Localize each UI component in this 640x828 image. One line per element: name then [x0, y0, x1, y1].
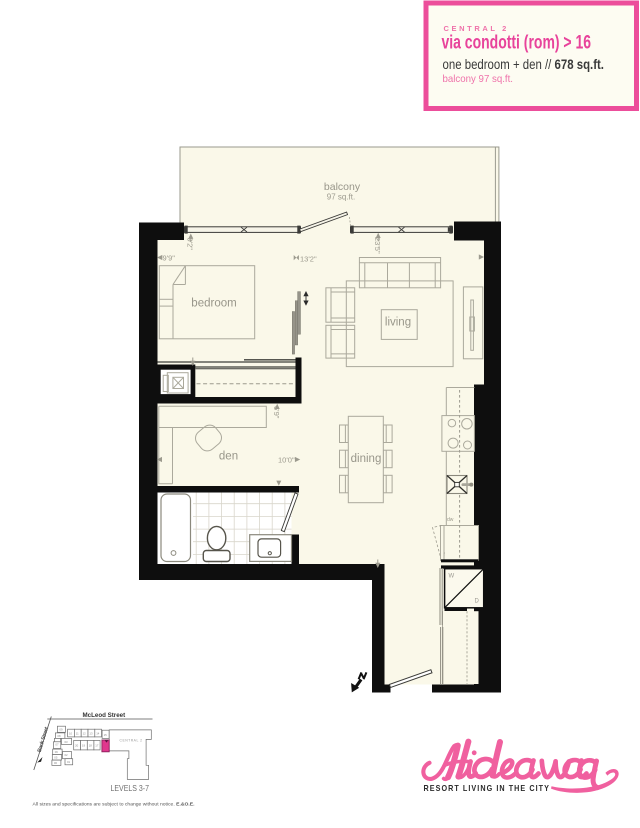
svg-text:W: W: [449, 574, 455, 580]
svg-text:97 sq.ft.: 97 sq.ft.: [327, 193, 355, 202]
svg-text:00: 00: [54, 761, 58, 765]
svg-text:23'5": 23'5": [373, 237, 382, 254]
svg-text:balcony: balcony: [324, 181, 361, 193]
svg-text:9'9": 9'9": [163, 254, 176, 263]
svg-text:McLeod Street: McLeod Street: [83, 712, 126, 719]
svg-text:08: 08: [57, 734, 61, 738]
svg-text:CENTRAL 2: CENTRAL 2: [120, 738, 143, 742]
svg-text:All sizes and specifications a: All sizes and specifications are subject…: [33, 801, 195, 806]
svg-text:dining: dining: [351, 453, 382, 465]
svg-text:06: 06: [55, 750, 59, 754]
svg-text:10: 10: [69, 732, 73, 736]
svg-text:19: 19: [82, 744, 86, 748]
svg-text:RESORT LIVING IN THE CITY: RESORT LIVING IN THE CITY: [424, 784, 551, 793]
svg-text:02: 02: [65, 753, 69, 757]
svg-text:13'2": 13'2": [300, 255, 317, 264]
svg-text:18: 18: [89, 744, 93, 748]
svg-text:13: 13: [89, 732, 93, 736]
svg-text:balcony 97 sq.ft.: balcony 97 sq.ft.: [443, 73, 514, 85]
svg-text:LEVELS 3-7: LEVELS 3-7: [111, 784, 150, 793]
svg-text:via condotti (rom) > 16: via condotti (rom) > 16: [442, 33, 592, 54]
svg-text:D: D: [475, 599, 480, 605]
svg-text:17: 17: [95, 744, 99, 748]
svg-text:10'0": 10'0": [278, 456, 295, 465]
svg-text:01: 01: [67, 760, 71, 764]
svg-text:15: 15: [104, 733, 108, 737]
svg-text:12: 12: [83, 732, 87, 736]
svg-text:living: living: [385, 317, 411, 329]
svg-text:09: 09: [59, 728, 63, 732]
svg-text:14: 14: [96, 732, 100, 736]
svg-text:bedroom: bedroom: [191, 298, 236, 310]
svg-text:20: 20: [75, 744, 79, 748]
svg-text:den: den: [219, 451, 238, 463]
svg-text:05: 05: [54, 756, 58, 760]
svg-text:one bedroom + den // 678 sq.ft: one bedroom + den // 678 sq.ft.: [443, 56, 604, 72]
svg-text:07: 07: [55, 743, 59, 747]
svg-text:9'2": 9'2": [186, 238, 195, 251]
svg-text:11: 11: [76, 732, 79, 736]
svg-text:03: 03: [65, 740, 69, 744]
svg-text:dw: dw: [447, 517, 454, 523]
